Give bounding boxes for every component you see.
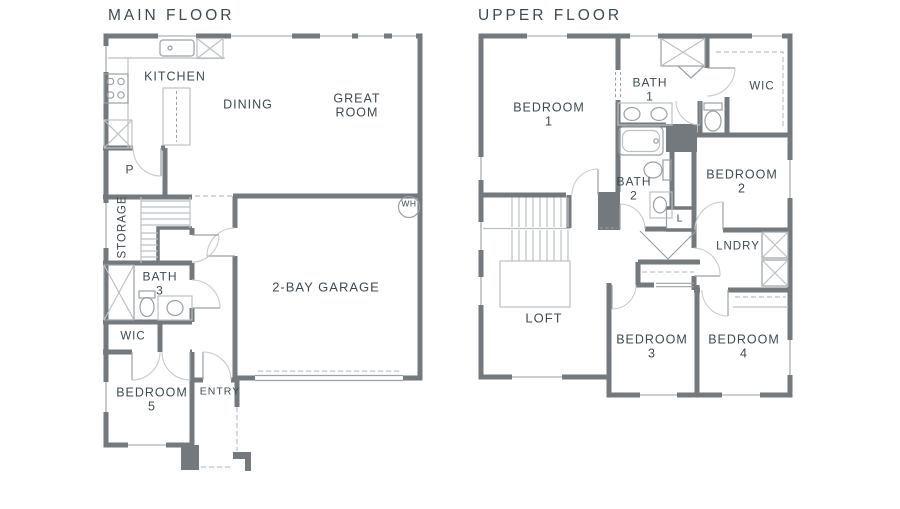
floorplan-drawing <box>0 0 900 509</box>
room-label-garage: 2-BAY GARAGE <box>272 280 380 294</box>
toilet-room-door <box>676 101 700 125</box>
kitchen-island <box>163 88 190 145</box>
room-label-loft: LOFT <box>525 311 562 325</box>
bath2-door <box>620 204 645 229</box>
room-label-bedroom3: BEDROOM3 <box>616 334 688 361</box>
bathtub <box>619 127 663 155</box>
room-label-bedroom1: BEDROOM1 <box>513 102 585 129</box>
garage-door <box>255 371 403 382</box>
room-label-wic-upper: WIC <box>749 80 774 94</box>
washer-dryer-stack <box>762 232 788 286</box>
bedroom4-closet <box>733 297 788 307</box>
room-label-dining: DINING <box>223 98 273 112</box>
understair-closet-door <box>192 235 219 262</box>
floorplan-canvas: MAIN FLOOR UPPER FLOOR KITCHEN DINING GR… <box>0 0 900 509</box>
room-label-bath3: BATH3 <box>142 271 177 298</box>
room-label-bath2: BATH2 <box>616 176 651 203</box>
front-door <box>203 352 231 380</box>
bath2-sink <box>650 192 672 218</box>
room-label-pantry: P <box>125 163 134 177</box>
bedroom4-door <box>702 290 728 316</box>
bath1-shower <box>661 39 705 79</box>
room-label-bedroom4: BEDROOM4 <box>708 334 780 361</box>
room-label-kitchen: KITCHEN <box>144 70 206 84</box>
main-floor-title: MAIN FLOOR <box>108 7 234 25</box>
bath1-double-vanity <box>618 103 672 125</box>
upper-floor-title: UPPER FLOOR <box>478 7 622 25</box>
room-label-entry: ENTRY <box>200 385 240 399</box>
kitchen-sink <box>160 40 194 56</box>
bath3-door <box>192 280 220 308</box>
room-label-linen: L <box>677 212 684 226</box>
stairs-main <box>141 197 190 263</box>
bedroom1-door <box>572 169 598 195</box>
refrigerator <box>197 39 223 59</box>
wic-main-door <box>132 352 160 380</box>
room-label-laundry: LNDRY <box>716 240 760 254</box>
toilet-room-toilet <box>704 103 722 131</box>
wic-upper-door <box>707 68 735 96</box>
room-label-bath1: BATH1 <box>632 77 667 104</box>
garage-entry-door <box>207 228 235 256</box>
room-label-bedroom5: BEDROOM5 <box>116 387 188 414</box>
pantry-door <box>133 148 161 176</box>
room-label-bedroom2: BEDROOM2 <box>706 169 778 196</box>
room-label-wic-main: WIC <box>120 330 145 344</box>
stairs-upper <box>483 198 570 308</box>
bedroom3-door <box>612 285 636 309</box>
bath3-sink <box>158 296 192 320</box>
bedroom2-door <box>695 202 723 230</box>
label-water-heater: WH <box>401 197 416 211</box>
room-label-great-room: GREATROOM <box>333 93 380 120</box>
bedroom5-door <box>162 352 190 380</box>
room-label-storage: STORAGE <box>116 195 130 258</box>
